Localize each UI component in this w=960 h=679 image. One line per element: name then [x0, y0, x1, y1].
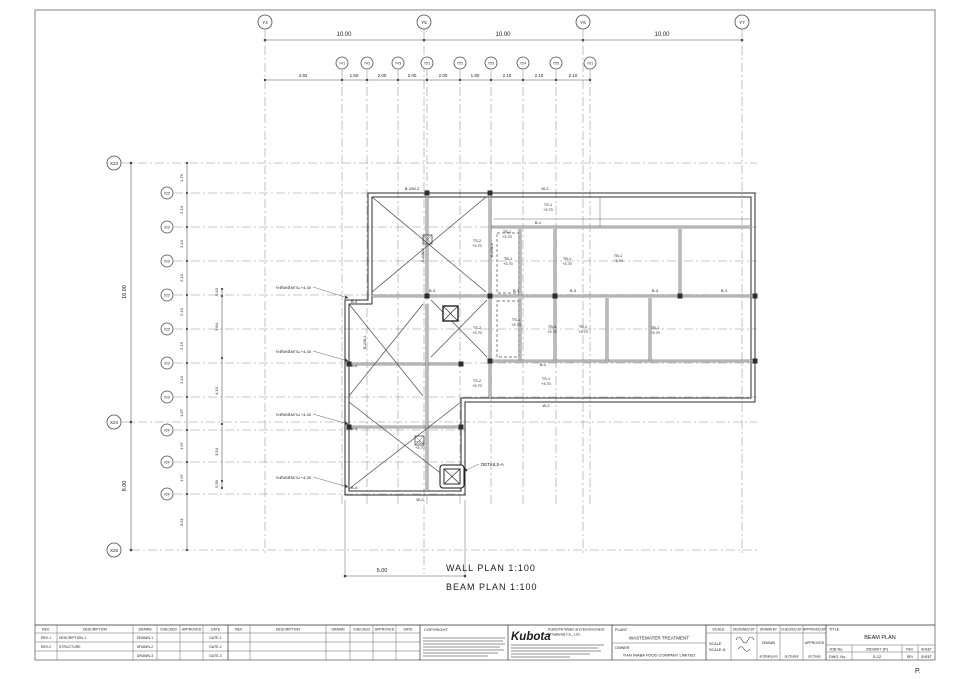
slab-level: +3.70: [578, 330, 588, 334]
dim-label: 2.00: [408, 73, 417, 78]
grid-bubble: X23: [107, 156, 121, 170]
slab-level: +3.70: [543, 208, 553, 212]
drawn-by-header: DRAWN BY: [760, 628, 778, 632]
dim-label: 2.00: [439, 73, 448, 78]
designed-by-header: DESIGNED BY: [733, 628, 756, 632]
slab-level: +3.70: [472, 384, 482, 388]
svg-text:Y5'4: Y5'4: [520, 61, 527, 65]
slab-level: +3.70: [541, 382, 551, 386]
dim-label: 1.97: [179, 408, 184, 417]
plant-label: PLANT: [615, 628, 628, 632]
rev-cell: DRAWN-3: [137, 654, 153, 658]
dim-label: 10.00: [495, 32, 511, 38]
hatched-column-box: [443, 306, 458, 321]
dim-label: 1.97: [179, 441, 184, 450]
plan-annotations: B-2/W-2 W-2 W-2 W-2 B-2/W-2 B-2/W-2 B-2/…: [276, 186, 728, 502]
wall-outline-inner: [349, 197, 751, 491]
svg-text:X23': X23': [164, 361, 171, 365]
job-no-value: 2503007 (P): [866, 647, 889, 652]
dim-label: 1.80: [471, 73, 480, 78]
svg-text:X24': X24': [164, 428, 171, 432]
svg-text:Y5: Y5: [421, 20, 427, 25]
rev-table-header: DRAWN: [331, 628, 345, 632]
rev-table-header: DRAWN: [138, 628, 152, 632]
slab-label: TB-1: [614, 254, 622, 258]
beam-label: B-3: [570, 288, 577, 293]
slab-label: TB-1: [503, 230, 511, 234]
grid-bubble: Y4'1: [336, 57, 348, 69]
page-letter: P.: [915, 668, 921, 675]
svg-text:X23': X23': [164, 395, 171, 399]
beam-label: B-4: [351, 363, 358, 368]
beam-plan-caption: BEAM PLAN 1:100: [446, 582, 538, 592]
beam-label: B-3: [513, 288, 520, 293]
dim-label: 2.13: [179, 239, 184, 248]
grid-bubble: Y5'2: [454, 57, 466, 69]
title-label: TITLE: [829, 628, 840, 632]
designed-signature: [736, 637, 754, 651]
slab-label: TS-2: [416, 441, 424, 445]
grid-bubble: X23': [161, 289, 173, 301]
beam-label: B-1: [540, 362, 547, 367]
slab-level: +3.70: [472, 244, 482, 248]
svg-text:X24': X24': [164, 460, 171, 464]
grid-bubble: Y4'3: [392, 57, 404, 69]
slab-level: +3.70: [650, 331, 660, 335]
beam-label: B-3: [652, 288, 659, 293]
drawn-name: at.Dilumpurn: [759, 655, 777, 659]
grid-bubble: Y5'5: [550, 57, 562, 69]
rev-table-header: CHECKED: [160, 628, 178, 632]
grid-bubble: X23': [161, 221, 173, 233]
grid-bubble: X23': [161, 187, 173, 199]
rev-cell: STRUCTURE: [59, 645, 81, 649]
svg-text:Y5'3: Y5'3: [488, 61, 495, 65]
top-grid: 10.00 10.00 10.00 Y4 Y5 Y6 Y7 4.92 1.50 …: [258, 15, 749, 574]
beam-label: W-2: [542, 403, 550, 408]
slab-level: +3.70: [472, 331, 482, 335]
job-no-label: JOB No.: [829, 648, 843, 652]
svg-text:X24': X24': [164, 492, 171, 496]
copyright-title: COPYRIGHT: [424, 627, 448, 632]
grid-bubble: Y4'2: [361, 57, 373, 69]
title-block: REV. DESCRIPTION DRAWN CHECKED APPROVED …: [35, 625, 935, 660]
dim-label: 3.54: [214, 447, 219, 456]
beam-label: B-4: [351, 299, 358, 304]
grid-bubble: X23': [161, 323, 173, 335]
company-name: KUBOTA Water and Environment: [548, 628, 605, 632]
rev-cell: REV-1: [41, 636, 51, 640]
dim-label: 1.79: [179, 173, 184, 182]
beam-label: B-2/W-2: [490, 243, 494, 257]
rev-table-header: DESCRIPTION: [276, 628, 300, 632]
svg-text:Y7: Y7: [739, 20, 745, 25]
scale-header: SCALE: [712, 628, 725, 632]
grid-bubble: X24': [161, 456, 173, 468]
plan-captions: WALL PLAN 1:100 BEAM PLAN 1:100: [446, 563, 538, 592]
beam-label: B-2/W-2: [405, 186, 420, 191]
dim-label: 1.97: [179, 473, 184, 482]
dim-label: 2.13: [179, 273, 184, 282]
rev-cell: DRAWN-2: [137, 645, 153, 649]
sheet-header: SHEET: [921, 648, 932, 652]
grid-bubble: X23': [161, 391, 173, 403]
slab-label: TS-2: [473, 379, 481, 383]
slab-label: TS-2: [473, 239, 481, 243]
drawing-title: BEAM PLAN: [864, 635, 896, 641]
drawing-sheet: 10.00 10.00 10.00 Y4 Y5 Y6 Y7 4.92 1.50 …: [0, 0, 960, 679]
rev-cell: DATE-1: [209, 636, 221, 640]
rev-value: REV: [907, 655, 914, 659]
scale-value: SCALE-N: [709, 648, 726, 652]
kubota-logo: Kubota: [511, 631, 551, 643]
grid-bubble: Y6: [576, 15, 590, 29]
rev-cell: DATE-3: [209, 654, 221, 658]
rev-cell: DATE-2: [209, 645, 221, 649]
rev-cell: REV-2: [41, 645, 51, 649]
slab-level: +3.70: [502, 235, 512, 239]
beam-level-note: ระดับหลังคาน +4.30: [276, 412, 312, 417]
beam-level-note: ระดับหลังคาน +4.30: [276, 285, 312, 290]
svg-text:X25: X25: [110, 548, 119, 553]
dim-label: 2.13: [179, 375, 184, 384]
svg-text:Y6: Y6: [580, 20, 586, 25]
copyright-micro-text: [423, 638, 505, 656]
dim-label: 4.92: [299, 73, 308, 78]
beam-label: B-2/W-1: [363, 335, 367, 349]
rev-cell: DRAWN-1: [137, 636, 153, 640]
rev-header: REV.: [906, 648, 913, 652]
slab-label: TB-1: [504, 257, 512, 261]
rev-table-header: CHECKED: [353, 628, 371, 632]
dim-label: 3.84: [214, 322, 219, 331]
details-a-box: [440, 465, 464, 488]
svg-text:X23: X23: [110, 161, 119, 166]
grid-bubble: Y7: [735, 15, 749, 29]
grid-bubble: Y6'1: [584, 57, 596, 69]
scale-value: SCALE: [709, 642, 722, 646]
grid-bubble: Y5'4: [517, 57, 529, 69]
beam-level-note: ระดับหลังคาน +4.30: [276, 475, 312, 480]
company-name: (Thailand) Co., Ltd.: [548, 633, 581, 637]
slab-label: TS-1: [512, 318, 520, 322]
svg-text:Y6'1: Y6'1: [587, 61, 594, 65]
grid-bubble: Y5'1: [421, 57, 433, 69]
beam-label: W-2: [541, 186, 549, 191]
grid-bubble: Y4: [258, 15, 272, 29]
dim-label: 16.00: [122, 285, 128, 299]
dwg-no-label: DWG. No.: [829, 655, 846, 659]
dim-label: 4.10: [214, 386, 219, 395]
slab-level: +3.70: [503, 262, 513, 266]
approved-name: at.Chuso: [808, 655, 821, 659]
grid-bubble: Y5'3: [485, 57, 497, 69]
slab-label: TS-1: [542, 377, 550, 381]
dim-label: 8.00: [122, 481, 128, 492]
svg-text:X23': X23': [164, 293, 171, 297]
grid-bubble: Y5: [417, 15, 431, 29]
slab-label: TB-1: [563, 257, 571, 261]
svg-text:Y4'3: Y4'3: [395, 61, 402, 65]
beam-plan: DETAILS-A: [345, 191, 758, 496]
slab-label: TB-1: [651, 326, 659, 330]
slab-label: TS-1: [544, 203, 552, 207]
grid-bubble: X24': [161, 424, 173, 436]
grid-bubble: X23': [161, 357, 173, 369]
grid-bubble: X24: [107, 415, 121, 429]
svg-text:X23': X23': [164, 225, 171, 229]
owner-label: OWNER: [615, 646, 630, 650]
dim-label: 10.00: [336, 32, 352, 38]
beam-label: B-1: [535, 220, 542, 225]
dim-label: 1.50: [350, 73, 359, 78]
rev-table-header: DATE: [403, 628, 413, 632]
svg-text:X23': X23': [164, 259, 171, 263]
dim-label: 2.14: [179, 205, 184, 214]
svg-text:Y5'2: Y5'2: [457, 61, 464, 65]
beam-label: B-4: [351, 485, 358, 490]
dim-label: 5.00: [377, 568, 388, 574]
dim-label: 2.00: [378, 73, 387, 78]
slab-label: TB-1: [548, 325, 556, 329]
details-a-label: DETAILS-A: [481, 462, 504, 467]
rev-table-header: DESCRIPTION: [83, 628, 107, 632]
dwg-no-value: S-12: [873, 654, 882, 659]
dim-label: 2.10: [569, 73, 578, 78]
beam-label: W-2: [416, 497, 424, 502]
svg-text:X23': X23': [164, 327, 171, 331]
beam-label: B-3: [429, 288, 436, 293]
wall-plan-caption: WALL PLAN 1:100: [446, 563, 536, 573]
dim-label: 10.00: [654, 32, 670, 38]
rev-table-header: APPROVED: [375, 628, 395, 632]
dim-label: 2.10: [503, 73, 512, 78]
svg-text:X24: X24: [110, 420, 119, 425]
slab-level: +3.70: [562, 262, 572, 266]
slab-level: +3.70: [415, 446, 425, 450]
dim-label: 0.43: [214, 287, 219, 296]
dim-label: 2.13: [179, 307, 184, 316]
slab-level: +3.70: [613, 259, 623, 263]
left-grid: 16.00 8.00 X23 X24 X25 1.79 2.14 2.13 2.…: [107, 156, 757, 557]
approved-by-header: APPROVED BY: [803, 628, 827, 632]
slab-level: +3.70: [511, 323, 521, 327]
grid-bubble: X23': [161, 255, 173, 267]
slab-label: TB-1: [579, 325, 587, 329]
plant-value: WASTEWATER TREATMENT: [629, 636, 689, 641]
beam-label: B-4: [351, 426, 358, 431]
wall-outline-outer: [345, 193, 755, 495]
beam-label: B-2/W-2: [421, 248, 425, 262]
sheet-value: SHEET: [921, 655, 932, 659]
svg-text:Y4'1: Y4'1: [339, 61, 346, 65]
checked-name: at.Chabut: [785, 655, 799, 659]
beam-level-note: ระดับหลังคาน +4.30: [276, 349, 312, 354]
rev-table-header: APPROVED: [182, 628, 202, 632]
dim-label: 2.13: [179, 341, 184, 350]
beam-label: B-3: [721, 288, 728, 293]
approved-label: APPROVED: [805, 641, 825, 645]
svg-text:Y4'2: Y4'2: [364, 61, 371, 65]
owner-value: THAI INABA FOOD COMPANY LIMITED: [623, 653, 696, 658]
drawn-label: DRAWN: [762, 641, 776, 645]
rev-table-header: REV.: [42, 628, 50, 632]
dim-label: 0.39: [214, 479, 219, 488]
grid-bubble: X24': [161, 488, 173, 500]
rev-cell: DESCRIPTION-1: [59, 636, 86, 640]
slab-level: +3.70: [547, 330, 557, 334]
grid-bubble: X25: [107, 543, 121, 557]
svg-text:X23': X23': [164, 191, 171, 195]
rev-table-header: REV.: [235, 628, 243, 632]
dim-label: 2.10: [535, 73, 544, 78]
svg-text:Y4: Y4: [262, 20, 268, 25]
svg-text:Y5'1: Y5'1: [424, 61, 431, 65]
checked-by-header: CHECKED BY: [781, 628, 803, 632]
rev-table-header: DATE: [211, 628, 221, 632]
company-address-micro-text: [511, 645, 604, 657]
slab-label: TS-2: [473, 326, 481, 330]
svg-text:Y5'5: Y5'5: [553, 61, 560, 65]
dim-label: 3.51: [179, 517, 184, 526]
